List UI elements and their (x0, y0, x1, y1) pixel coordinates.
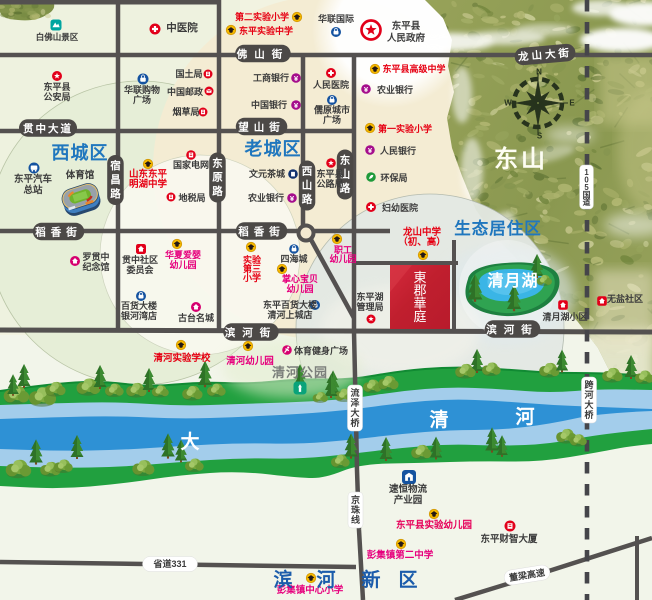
svg-text:东山: 东山 (494, 145, 548, 173)
svg-text:纪念馆: 纪念馆 (82, 261, 109, 272)
svg-text:第一实验小学: 第一实验小学 (378, 123, 432, 134)
svg-text:广场: 广场 (323, 114, 341, 125)
svg-text:¥: ¥ (294, 74, 299, 83)
svg-text:山: 山 (302, 179, 313, 192)
svg-text:桥: 桥 (584, 409, 594, 420)
svg-text:东平县实验幼儿园: 东平县实验幼儿园 (396, 519, 472, 531)
svg-text:清河公园: 清河公园 (272, 365, 328, 380)
svg-text:东平汽车: 东平汽车 (14, 173, 53, 185)
svg-text:地税局: 地税局 (178, 192, 205, 203)
svg-text:佛山街: 佛山街 (236, 47, 290, 60)
svg-text:东平县高级中学: 东平县高级中学 (382, 63, 445, 74)
svg-text:河: 河 (584, 389, 593, 400)
svg-text:罗贯中: 罗贯中 (82, 251, 109, 262)
svg-text:珠: 珠 (351, 504, 361, 515)
svg-text:环保局: 环保局 (380, 172, 407, 183)
svg-text:跨: 跨 (584, 379, 594, 390)
svg-text:望山街: 望山街 (238, 120, 285, 133)
svg-text:华联国际: 华联国际 (318, 13, 354, 24)
svg-text:大: 大 (584, 399, 593, 410)
svg-text:西: 西 (302, 166, 313, 178)
svg-text:老城区: 老城区 (245, 138, 302, 159)
svg-text:宿: 宿 (110, 159, 121, 172)
svg-text:滨: 滨 (273, 568, 292, 591)
svg-text:掌心宝贝: 掌心宝贝 (282, 273, 318, 284)
svg-text:路: 路 (302, 193, 313, 206)
svg-text:银河湾店: 银河湾店 (121, 310, 157, 321)
svg-text:管理局: 管理局 (356, 301, 383, 312)
svg-text:河: 河 (316, 569, 335, 591)
svg-text:滨河街: 滨河街 (225, 326, 278, 339)
svg-text:清: 清 (429, 408, 448, 431)
svg-text:N: N (536, 68, 542, 77)
svg-text:彭集镇第二中学: 彭集镇第二中学 (367, 549, 434, 561)
svg-text:幼儿园: 幼儿园 (329, 253, 356, 264)
svg-text:清月湖: 清月湖 (487, 272, 538, 290)
svg-text:儒原城市: 儒原城市 (313, 104, 350, 115)
svg-text:清河幼儿园: 清河幼儿园 (226, 355, 274, 367)
svg-text:古台名城: 古台名城 (178, 312, 214, 323)
svg-text:无盐社区: 无盐社区 (606, 293, 643, 304)
svg-text:庭: 庭 (413, 309, 426, 324)
svg-text:东: 东 (212, 157, 223, 170)
svg-text:东平县: 东平县 (392, 20, 421, 32)
svg-text:体育健身广场: 体育健身广场 (294, 345, 348, 356)
svg-text:东平县: 东平县 (316, 168, 343, 179)
svg-text:公安局: 公安局 (43, 91, 70, 102)
svg-text:E: E (569, 99, 575, 108)
svg-text:京: 京 (351, 494, 360, 505)
svg-text:贯中社区: 贯中社区 (122, 254, 158, 265)
svg-text:昌: 昌 (110, 174, 121, 186)
svg-text:W: W (504, 99, 512, 108)
svg-text:人民银行: 人民银行 (379, 145, 416, 156)
svg-text:东平县: 东平县 (43, 81, 70, 92)
svg-text:大: 大 (180, 430, 199, 453)
svg-text:百货大楼: 百货大楼 (121, 300, 157, 311)
svg-text:东: 东 (340, 154, 351, 167)
svg-text:东平财智大厦: 东平财智大厦 (480, 533, 538, 545)
svg-text:人民医院: 人民医院 (312, 79, 349, 90)
svg-text:道: 道 (583, 197, 591, 207)
svg-text:东平湖: 东平湖 (356, 291, 383, 302)
svg-text:大: 大 (350, 407, 359, 418)
svg-text:委员会: 委员会 (125, 264, 154, 275)
svg-text:农业银行: 农业银行 (247, 192, 284, 203)
svg-text:第二实验小学: 第二实验小学 (235, 11, 289, 22)
svg-text:生态居住区: 生态居住区 (454, 218, 542, 238)
svg-text:国家电网: 国家电网 (173, 159, 209, 170)
svg-text:四海城: 四海城 (280, 253, 307, 264)
svg-text:文元茶城: 文元茶城 (248, 168, 285, 179)
svg-text:（初、高）: （初、高） (398, 236, 446, 248)
svg-text:中医院: 中医院 (166, 21, 198, 34)
svg-text:幼儿园: 幼儿园 (286, 283, 313, 294)
svg-text:新: 新 (361, 568, 380, 591)
svg-text:幼儿园: 幼儿园 (169, 259, 196, 270)
svg-text:妇幼医院: 妇幼医院 (381, 202, 418, 213)
svg-text:¥: ¥ (364, 85, 369, 94)
svg-text:速恒物流: 速恒物流 (389, 483, 428, 495)
svg-text:原: 原 (212, 172, 223, 184)
svg-text:清河实验学校: 清河实验学校 (153, 352, 211, 364)
svg-text:公路局: 公路局 (316, 178, 343, 189)
svg-text:泽: 泽 (350, 397, 359, 408)
svg-text:体育馆: 体育馆 (66, 169, 95, 181)
svg-text:流: 流 (350, 387, 359, 398)
svg-text:小学: 小学 (242, 272, 261, 283)
svg-text:线: 线 (351, 514, 360, 525)
svg-text:白佛山景区: 白佛山景区 (36, 32, 79, 42)
svg-text:路: 路 (212, 185, 223, 198)
svg-text:稻香街: 稻香街 (35, 225, 82, 238)
svg-text:工商银行: 工商银行 (253, 72, 289, 83)
svg-text:人民政府: 人民政府 (387, 32, 426, 44)
svg-text:明湖中学: 明湖中学 (129, 178, 168, 190)
svg-text:华夏爱婴: 华夏爱婴 (165, 249, 201, 260)
svg-text:¥: ¥ (368, 146, 373, 155)
svg-text:路: 路 (110, 187, 121, 200)
svg-text:中国邮政: 中国邮政 (167, 86, 204, 97)
svg-text:S: S (537, 132, 543, 141)
svg-text:省道331: 省道331 (152, 558, 186, 569)
svg-text:河: 河 (515, 406, 534, 428)
svg-text:中国银行: 中国银行 (251, 99, 287, 110)
svg-text:华联购物: 华联购物 (124, 84, 160, 95)
svg-text:稻香街: 稻香街 (238, 225, 285, 238)
svg-text:产业园: 产业园 (394, 494, 423, 506)
svg-text:清月湖小区: 清月湖小区 (542, 311, 587, 322)
svg-text:广场: 广场 (133, 94, 151, 105)
svg-text:¥: ¥ (290, 194, 295, 203)
svg-text:滨河街: 滨河街 (486, 323, 539, 336)
svg-text:东平实验中学: 东平实验中学 (239, 25, 293, 36)
svg-text:桥: 桥 (350, 417, 360, 428)
svg-text:¥: ¥ (294, 101, 299, 110)
svg-text:东平百货大楼: 东平百货大楼 (263, 299, 317, 310)
svg-text:总站: 总站 (23, 184, 43, 196)
svg-text:西城区: 西城区 (52, 142, 109, 163)
svg-text:清河上城店: 清河上城店 (267, 309, 312, 320)
svg-text:区: 区 (398, 570, 417, 591)
svg-text:贯中大道: 贯中大道 (23, 122, 73, 135)
svg-text:烟草局: 烟草局 (172, 106, 199, 117)
svg-text:农业银行: 农业银行 (376, 84, 413, 95)
svg-text:国土局: 国土局 (175, 68, 202, 79)
